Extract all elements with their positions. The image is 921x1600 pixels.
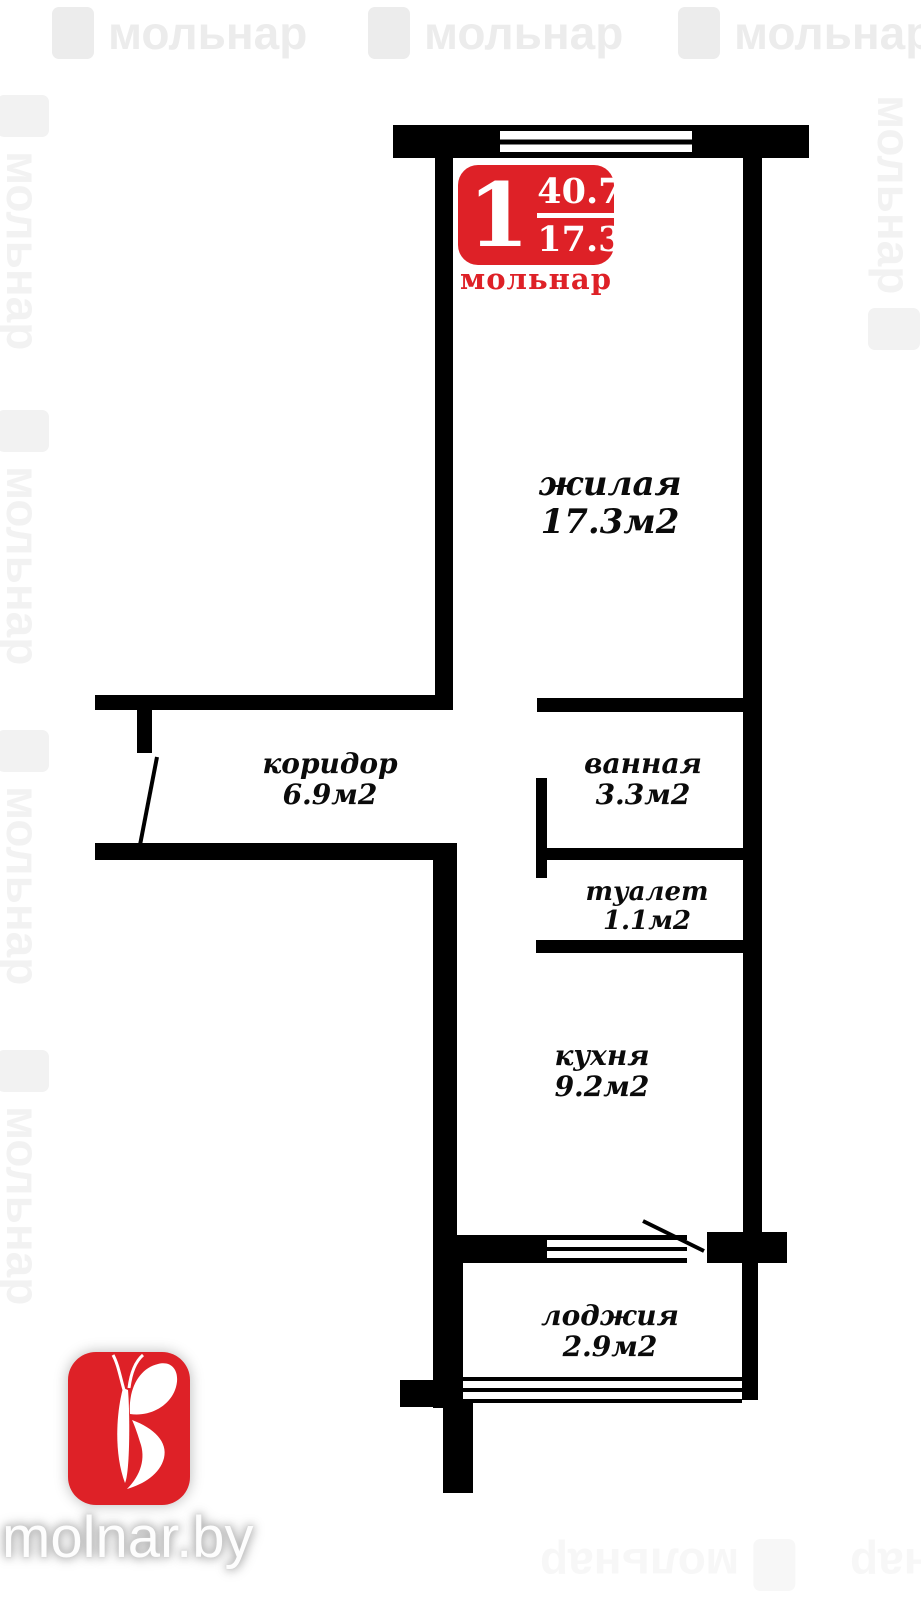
room-label-corridor: коридор 6.9м2	[230, 748, 430, 810]
room-area: 1.1м2	[547, 907, 747, 936]
room-name: туалет	[547, 878, 747, 907]
living-area: 17.3	[537, 218, 622, 259]
room-name: коридор	[230, 748, 430, 779]
butterfly-icon	[68, 1352, 190, 1505]
room-name: ванная	[543, 748, 743, 779]
area-fraction: 40.7 17.3	[537, 172, 622, 259]
room-label-living: жилая 17.3м2	[460, 465, 760, 541]
room-area: 6.9м2	[230, 779, 430, 810]
brand-name: мольнар	[458, 262, 614, 296]
balcony-door-swing	[643, 1221, 704, 1251]
rooms-count: 1	[458, 171, 529, 259]
room-name: жилая	[460, 465, 760, 503]
listing-badge: 1 40.7 17.3	[458, 165, 614, 265]
molnar-logo	[68, 1352, 190, 1505]
room-label-bathroom: ванная 3.3м2	[543, 748, 743, 810]
site-url: molnar.by	[2, 1504, 422, 1571]
room-label-loggia: лоджия 2.9м2	[510, 1300, 710, 1362]
room-area: 3.3м2	[543, 779, 743, 810]
floor-plan-canvas: мольнар мольнар мольнар мольнар мольнар …	[0, 0, 921, 1600]
room-label-kitchen: кухня 9.2м2	[502, 1040, 702, 1102]
entrance-door-swing	[140, 757, 157, 845]
room-area: 9.2м2	[502, 1071, 702, 1102]
total-area: 40.7	[537, 172, 622, 218]
room-area: 2.9м2	[510, 1331, 710, 1362]
room-label-toilet: туалет 1.1м2	[547, 878, 747, 936]
room-name: лоджия	[510, 1300, 710, 1331]
room-name: кухня	[502, 1040, 702, 1071]
room-area: 17.3м2	[460, 503, 760, 541]
